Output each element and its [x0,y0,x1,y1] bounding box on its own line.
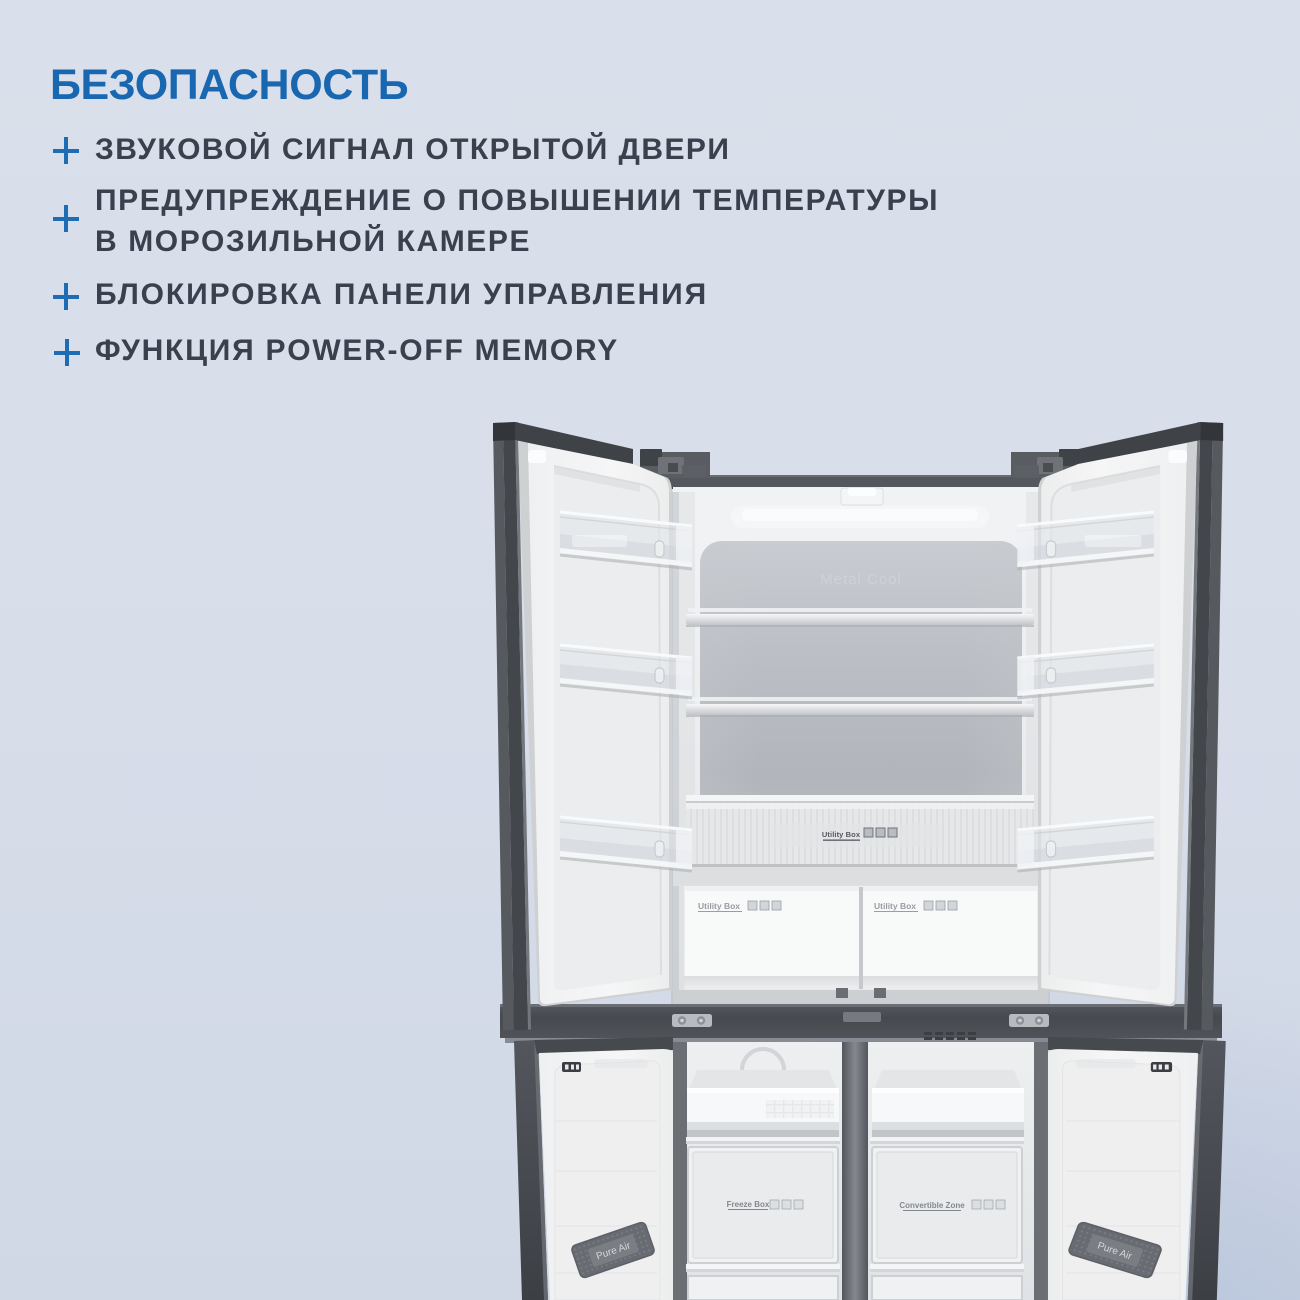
svg-text:Utility Box: Utility Box [874,901,916,911]
svg-text:Utility Box: Utility Box [822,830,861,839]
svg-text:Metal Cool: Metal Cool [820,571,902,588]
svg-text:Utility Box: Utility Box [698,901,740,911]
svg-text:Convertible Zone: Convertible Zone [899,1201,965,1210]
svg-text:Freeze Box: Freeze Box [727,1200,770,1209]
